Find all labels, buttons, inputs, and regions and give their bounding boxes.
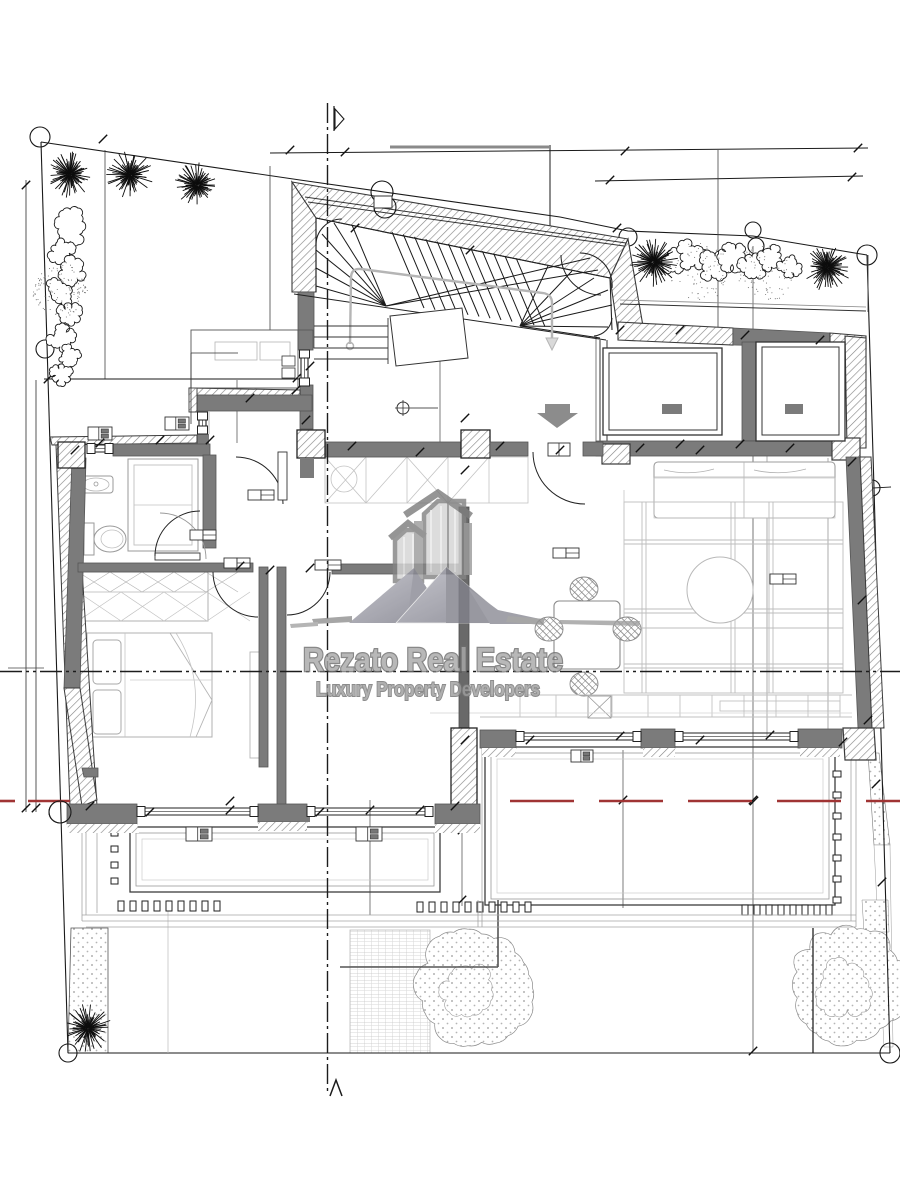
svg-text:Rezato Real Estate: Rezato Real Estate [303, 641, 563, 678]
svg-text:Luxury Property Developers: Luxury Property Developers [316, 679, 540, 701]
